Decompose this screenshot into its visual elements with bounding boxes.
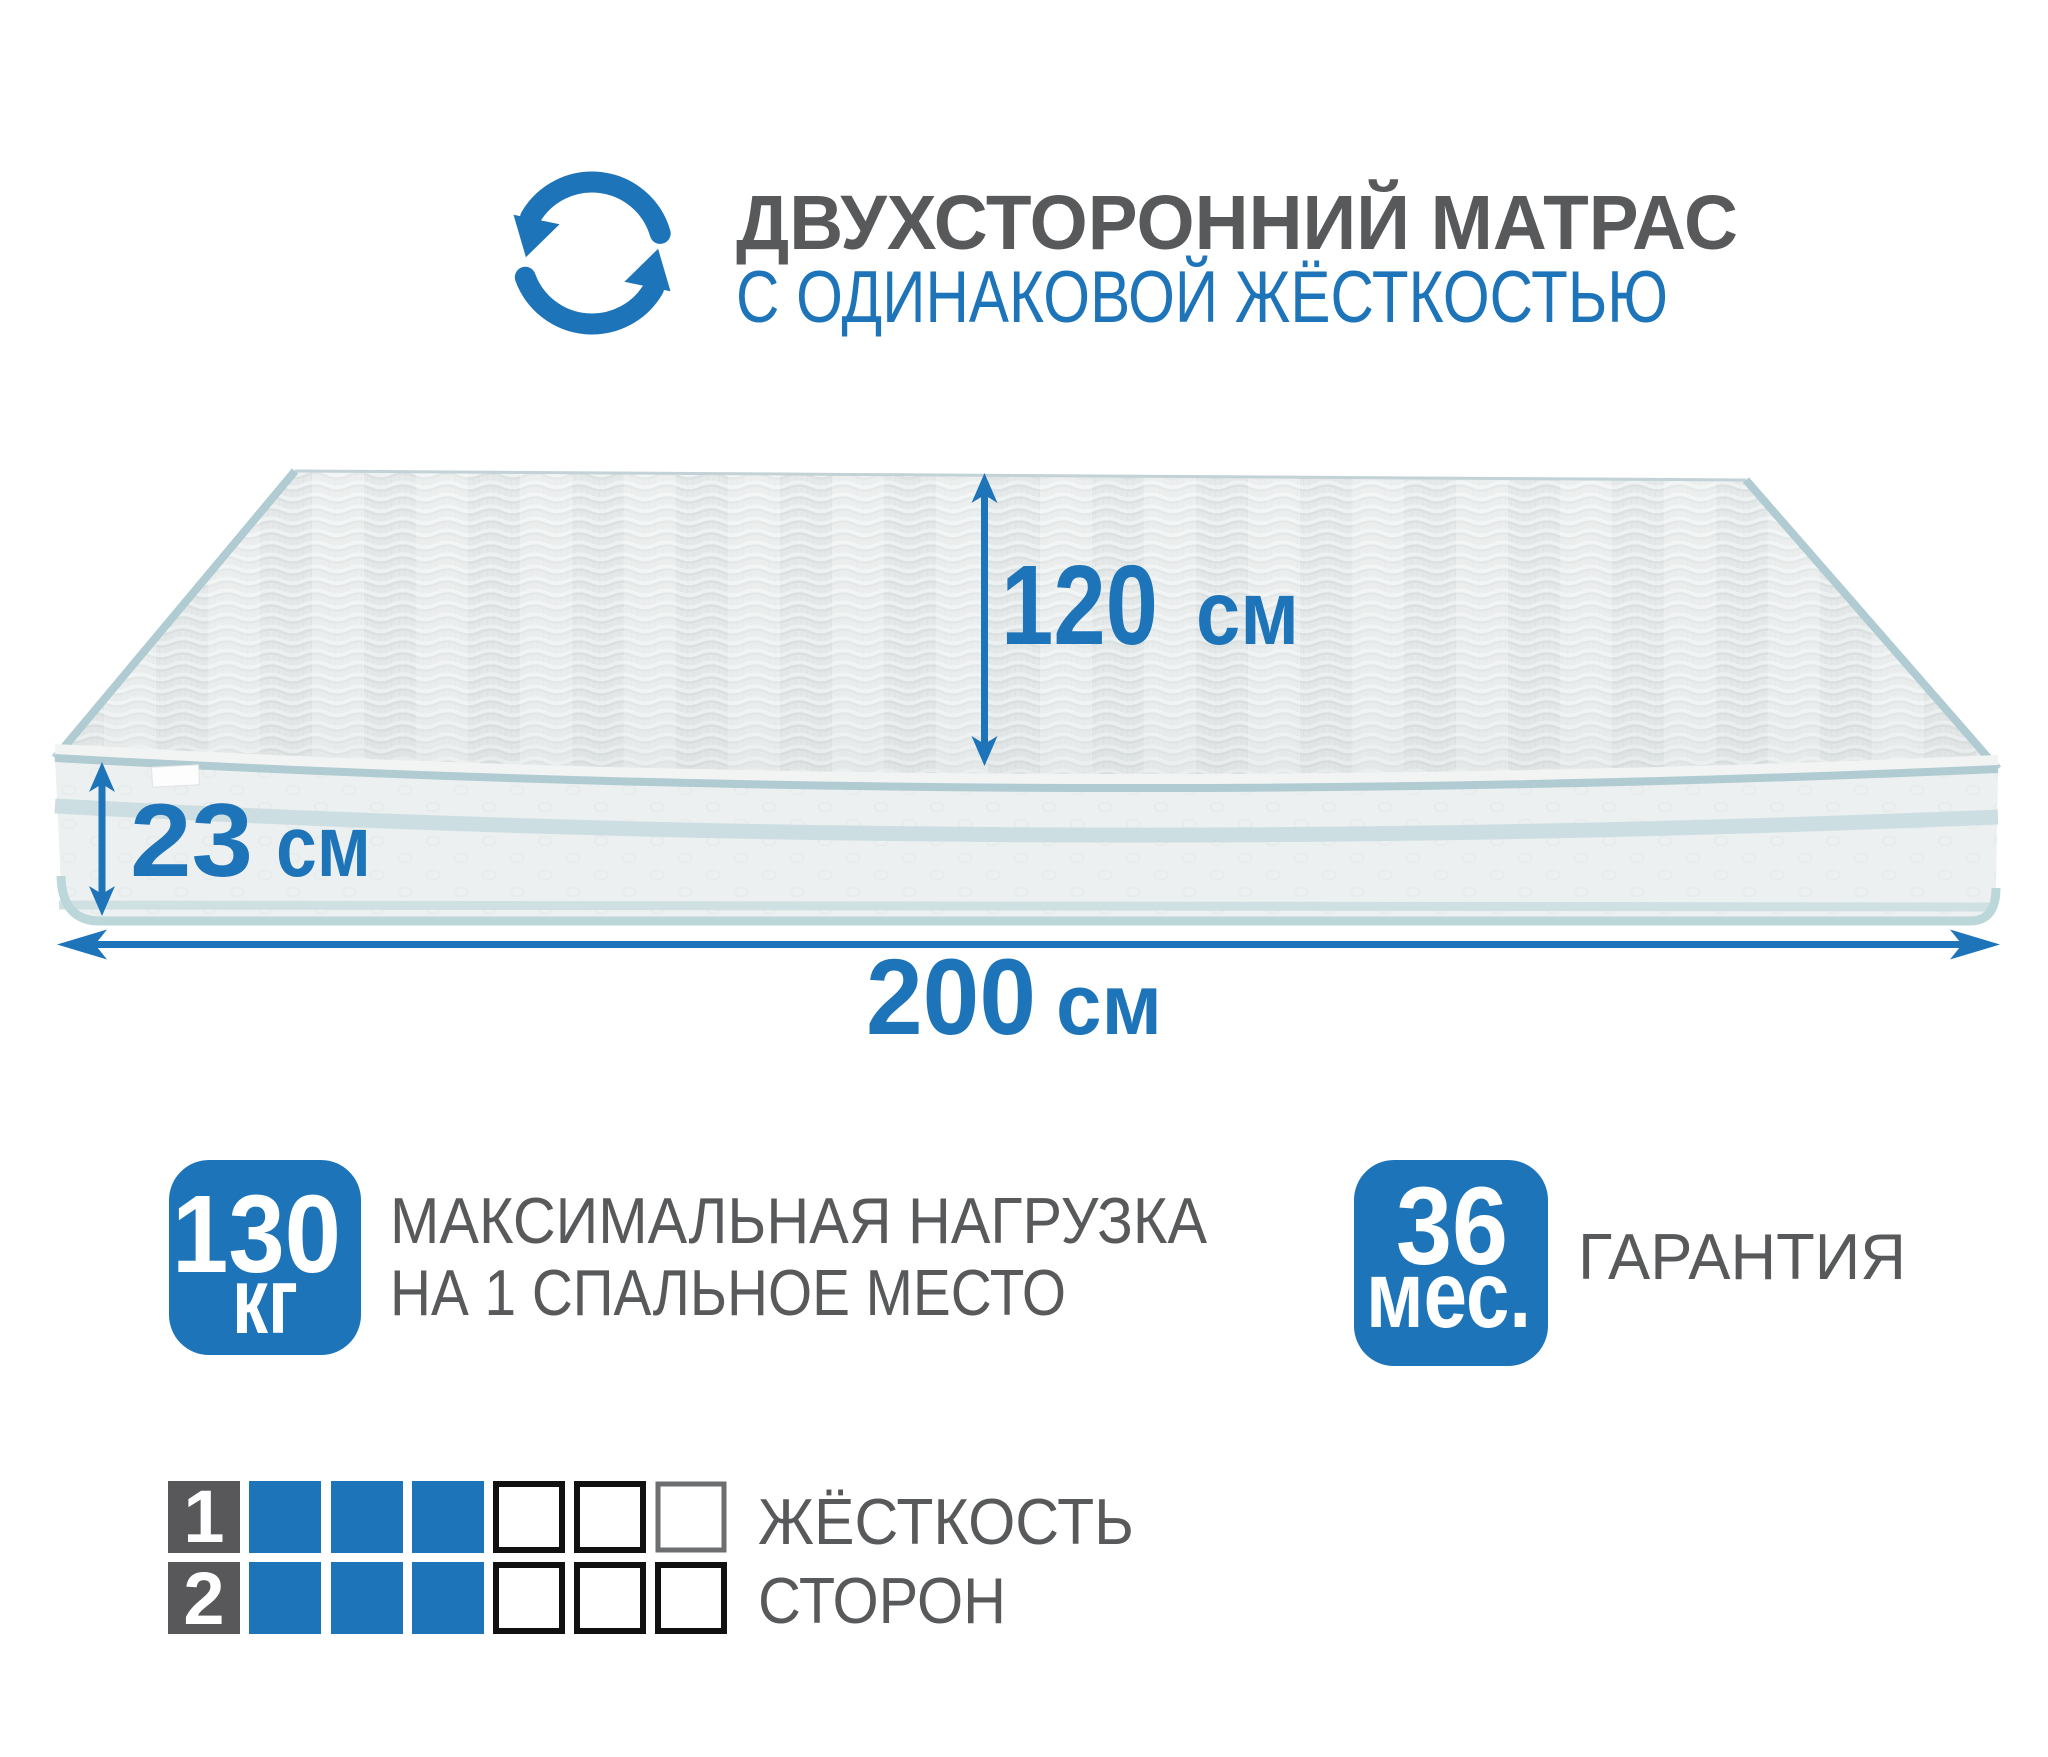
- svg-text:НА 1 СПАЛЬНОЕ МЕСТО: НА 1 СПАЛЬНОЕ МЕСТО: [390, 1256, 1066, 1329]
- svg-text:200: 200: [866, 936, 1036, 1057]
- svg-text:кг: кг: [232, 1248, 298, 1353]
- svg-text:ГАРАНТИЯ: ГАРАНТИЯ: [1578, 1220, 1906, 1293]
- svg-text:ДВУХСТОРОННИЙ МАТРАС: ДВУХСТОРОННИЙ МАТРАС: [736, 178, 1738, 266]
- svg-text:С ОДИНАКОВОЙ ЖЁСТКОСТЬЮ: С ОДИНАКОВОЙ ЖЁСТКОСТЬЮ: [736, 256, 1668, 338]
- svg-text:МАКСИМАЛЬНАЯ НАГРУЗКА: МАКСИМАЛЬНАЯ НАГРУЗКА: [390, 1184, 1208, 1257]
- svg-text:2: 2: [183, 1557, 224, 1640]
- svg-text:ЖЁСТКОСТЬ: ЖЁСТКОСТЬ: [758, 1485, 1134, 1558]
- svg-text:23: 23: [130, 783, 253, 899]
- svg-text:СТОРОН: СТОРОН: [758, 1564, 1006, 1637]
- svg-text:мес.: мес.: [1366, 1242, 1531, 1348]
- svg-text:см: см: [1056, 957, 1162, 1053]
- svg-text:см: см: [1196, 563, 1299, 664]
- svg-text:см: см: [276, 798, 371, 895]
- svg-text:120: 120: [1001, 542, 1158, 668]
- svg-text:1: 1: [183, 1475, 224, 1558]
